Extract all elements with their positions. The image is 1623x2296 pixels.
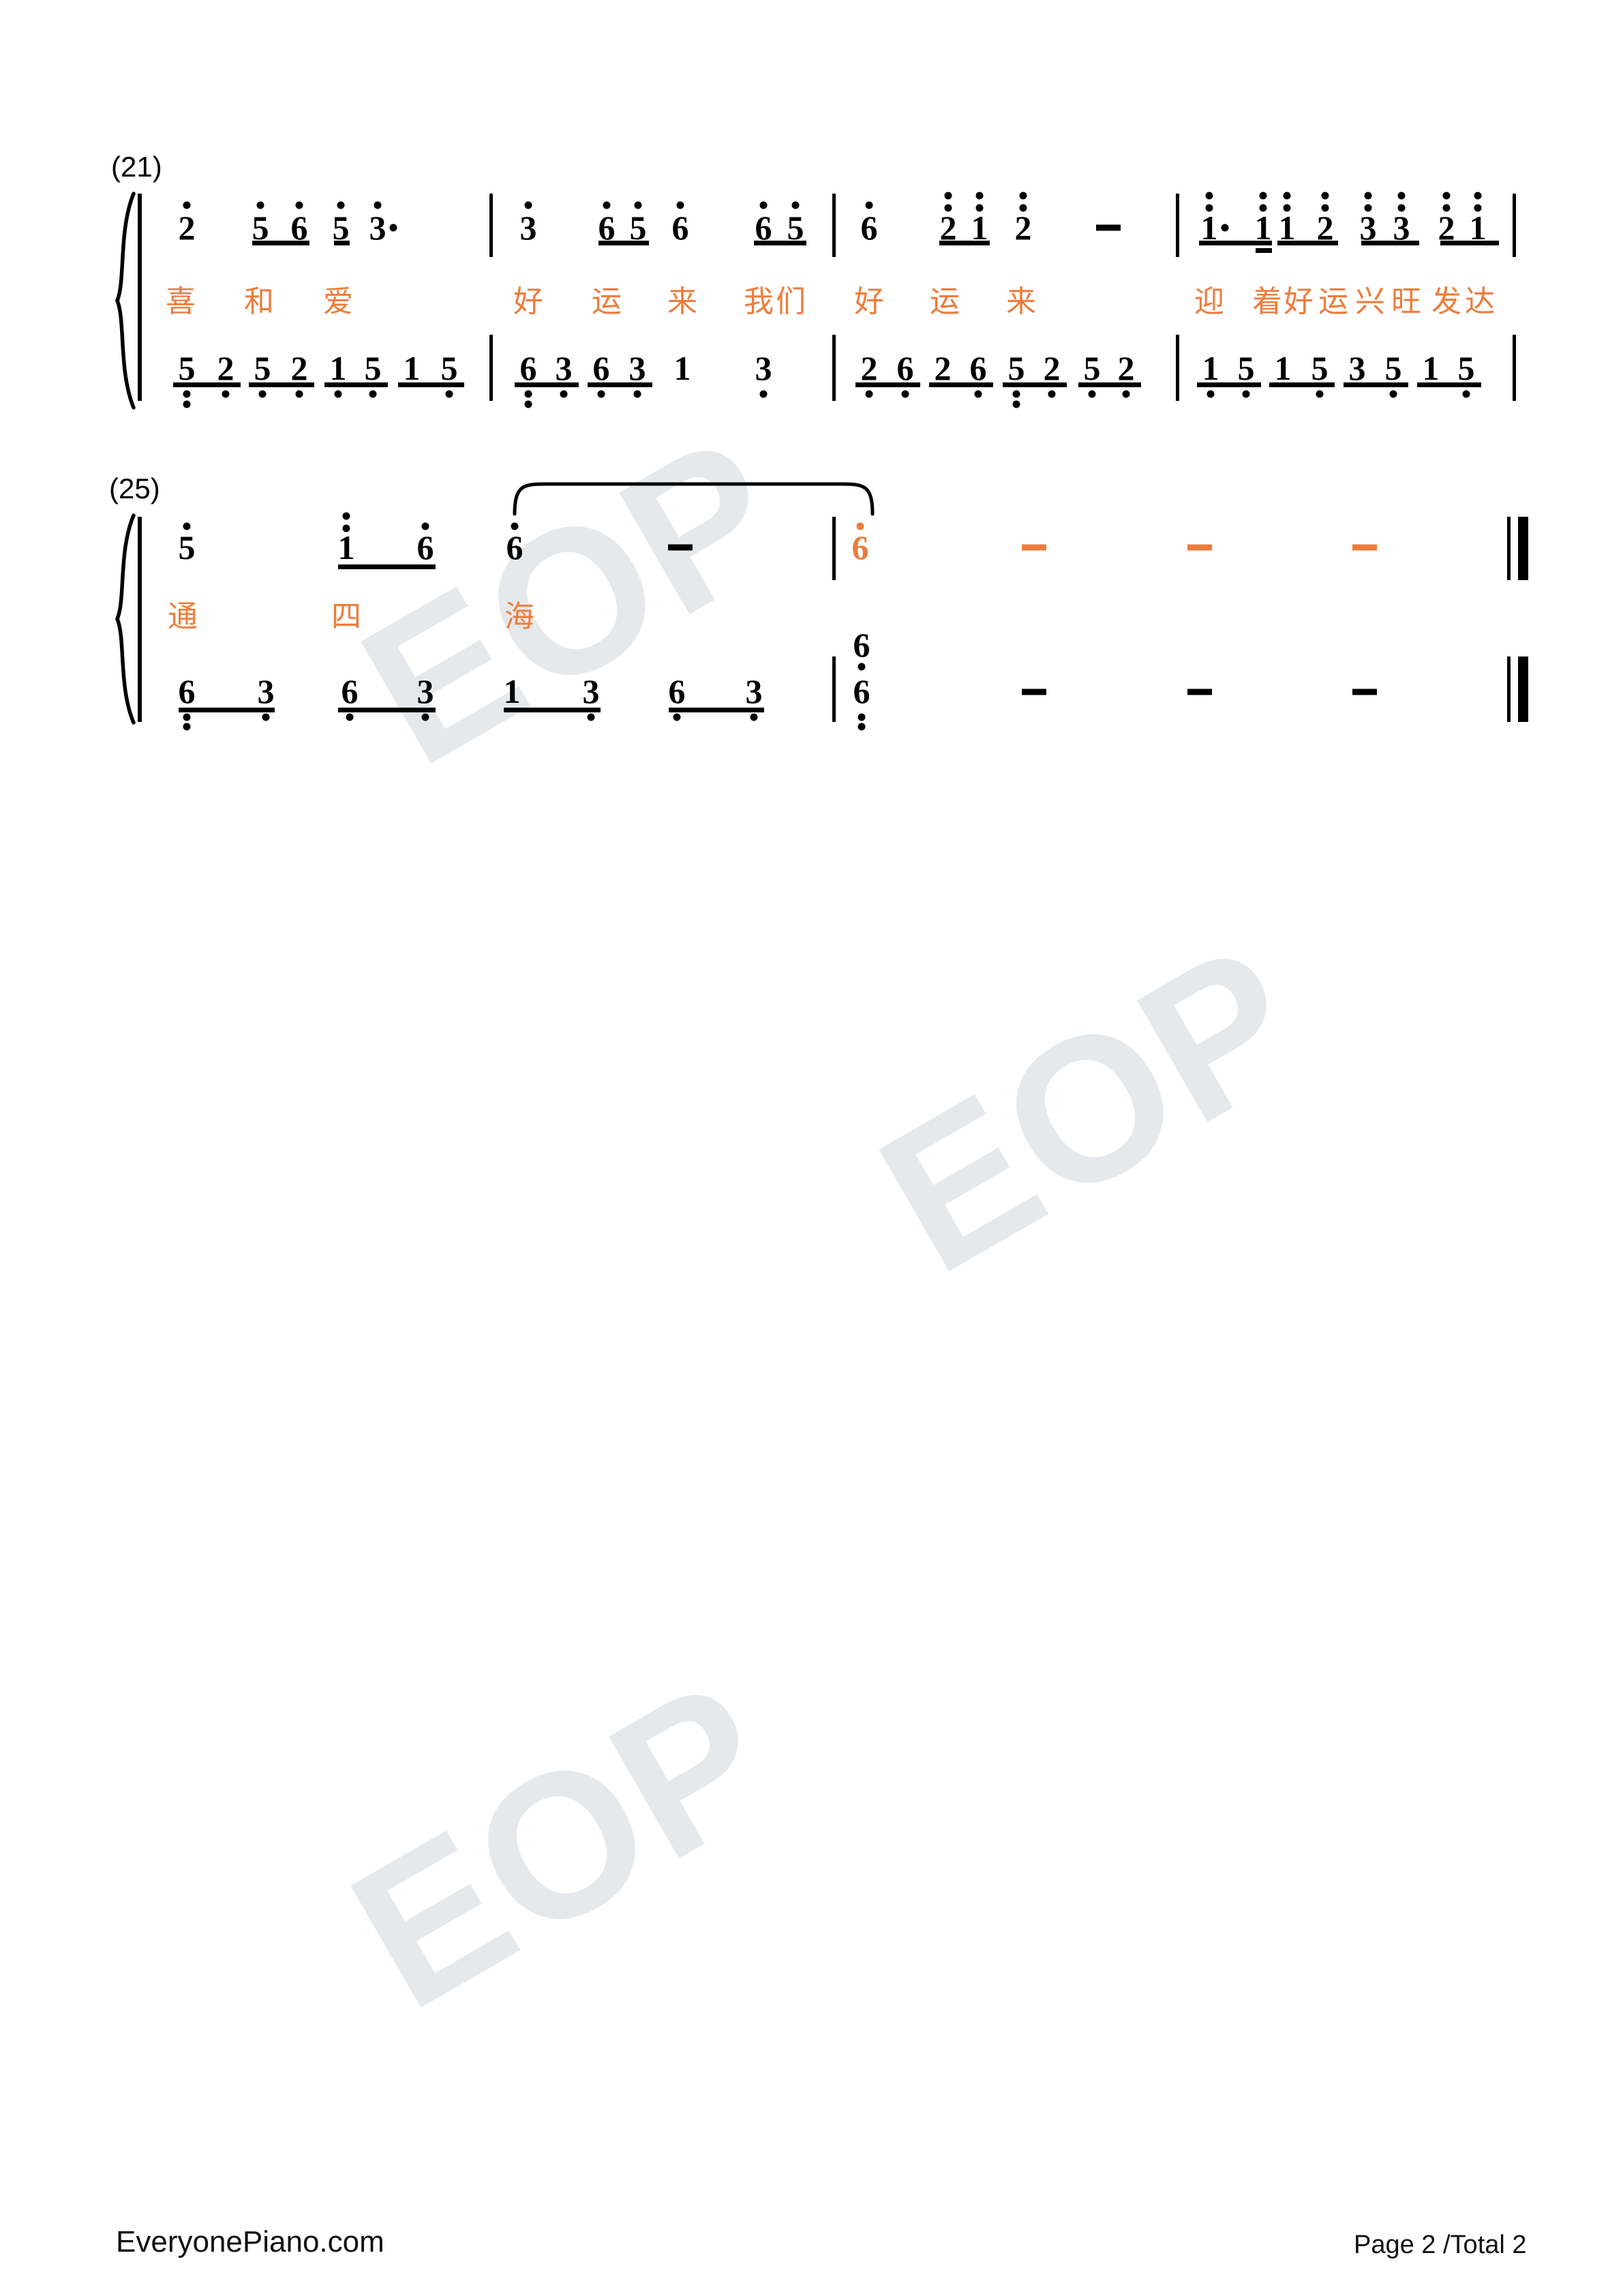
jianpu-digit: 5 bbox=[787, 211, 804, 245]
lyric-syllable: 运 bbox=[1318, 287, 1348, 317]
octave-dot bbox=[183, 723, 191, 731]
jianpu-digit: 2 bbox=[1015, 211, 1032, 245]
lyric-syllable: 海 bbox=[504, 602, 534, 632]
beam-line bbox=[504, 708, 601, 712]
footer-page-info: Page 2 /Total 2 bbox=[1354, 2231, 1527, 2260]
jianpu-digit: 3 bbox=[746, 674, 763, 708]
beam-line bbox=[1199, 241, 1272, 245]
jianpu-digit: 6 bbox=[897, 351, 914, 385]
sheet-music-page: EOPEOPEOP (21)25653365665621211123321喜和爱… bbox=[0, 0, 1623, 2296]
measure-number-label: (25) bbox=[109, 474, 160, 503]
barline bbox=[489, 335, 493, 401]
jianpu-digit: 1 bbox=[504, 674, 521, 708]
octave-dot bbox=[588, 714, 595, 721]
octave-dot bbox=[560, 391, 568, 398]
lyric-syllable: 们 bbox=[776, 287, 806, 317]
eop-watermark: EOP bbox=[325, 389, 821, 811]
octave-dot bbox=[945, 205, 952, 212]
jianpu-digit: 5 bbox=[1311, 351, 1329, 385]
beam-line bbox=[1361, 241, 1419, 245]
beam-line bbox=[1078, 382, 1141, 387]
octave-dot bbox=[1365, 192, 1372, 200]
octave-dot bbox=[183, 523, 191, 530]
jianpu-digit: 5 bbox=[1238, 351, 1255, 385]
eop-watermark: EOP bbox=[843, 896, 1339, 1318]
jianpu-digit: 5 bbox=[252, 211, 269, 245]
lyric-syllable: 来 bbox=[1006, 287, 1036, 317]
octave-dot bbox=[976, 205, 984, 212]
measure-number-label: (21) bbox=[111, 153, 162, 181]
octave-dot bbox=[257, 202, 264, 209]
beam-line bbox=[1277, 241, 1338, 245]
barline bbox=[1507, 517, 1511, 580]
barline bbox=[1176, 335, 1179, 401]
beam-line bbox=[1197, 382, 1261, 387]
jianpu-digit: 3 bbox=[1360, 211, 1377, 245]
beam-line bbox=[334, 241, 350, 245]
lyric-syllable: 兴 bbox=[1355, 287, 1385, 317]
barline bbox=[1507, 656, 1511, 722]
beam-line bbox=[324, 382, 388, 387]
jianpu-digit: 1 bbox=[971, 211, 988, 245]
lyric-syllable: 迎 bbox=[1194, 287, 1224, 317]
lyric-syllable: 爱 bbox=[323, 287, 353, 317]
jianpu-digit: 1 bbox=[1275, 351, 1292, 385]
octave-dot bbox=[750, 714, 758, 721]
octave-dot bbox=[390, 224, 397, 232]
lyric-syllable: 喜 bbox=[166, 287, 196, 317]
octave-dot bbox=[760, 391, 768, 398]
eop-watermark: EOP bbox=[315, 1633, 810, 2055]
octave-dot bbox=[1207, 391, 1215, 398]
jianpu-digit: 5 bbox=[179, 530, 196, 564]
jianpu-digit: 2 bbox=[940, 211, 957, 245]
jianpu-digit: 3 bbox=[417, 674, 434, 708]
grand-staff-brace bbox=[109, 513, 142, 725]
octave-dot bbox=[1322, 205, 1329, 212]
octave-dot bbox=[369, 391, 377, 398]
octave-dot bbox=[1322, 192, 1329, 200]
jianpu-digit: 6 bbox=[342, 674, 359, 708]
octave-dot bbox=[343, 525, 350, 532]
jianpu-digit: 6 bbox=[598, 211, 616, 245]
octave-dot bbox=[902, 391, 909, 398]
barline-thick bbox=[1518, 517, 1528, 580]
beam-line bbox=[1417, 382, 1481, 387]
beam-line bbox=[515, 382, 579, 387]
jianpu-digit: 1 bbox=[338, 530, 355, 564]
jianpu-digit: 5 bbox=[1084, 351, 1101, 385]
jianpu-digit: 6 bbox=[672, 211, 689, 245]
lyric-syllable: 四 bbox=[331, 602, 361, 632]
jianpu-digit: 3 bbox=[369, 211, 386, 245]
barline bbox=[832, 656, 836, 722]
octave-dot bbox=[634, 391, 641, 398]
octave-dot bbox=[976, 192, 984, 200]
jianpu-digit: 5 bbox=[630, 211, 647, 245]
beam-line bbox=[249, 382, 314, 387]
barline bbox=[1176, 194, 1179, 257]
octave-dot bbox=[422, 523, 429, 530]
beam-line bbox=[939, 241, 990, 245]
octave-dot bbox=[511, 523, 519, 530]
octave-dot bbox=[858, 723, 866, 731]
jianpu-digit: 1 bbox=[404, 351, 421, 385]
jianpu-digit: 5 bbox=[254, 351, 271, 385]
octave-dot bbox=[1013, 401, 1020, 408]
octave-dot bbox=[525, 202, 532, 209]
jianpu-digit: 2 bbox=[1438, 211, 1455, 245]
jianpu-digit: 5 bbox=[1385, 351, 1402, 385]
jianpu-digit: 6 bbox=[593, 351, 610, 385]
octave-dot bbox=[1013, 391, 1020, 398]
lyric-syllable: 好 bbox=[1284, 287, 1314, 317]
octave-dot bbox=[1284, 192, 1291, 200]
octave-dot bbox=[183, 391, 191, 398]
lyric-syllable: 发 bbox=[1431, 287, 1461, 317]
jianpu-digit: 3 bbox=[520, 211, 537, 245]
octave-dot bbox=[1365, 205, 1372, 212]
octave-dot bbox=[1206, 192, 1213, 200]
duration-dash bbox=[668, 545, 693, 551]
jianpu-digit: 6 bbox=[417, 530, 434, 564]
octave-dot bbox=[296, 202, 303, 209]
octave-dot bbox=[677, 202, 684, 209]
barline-thick bbox=[1518, 656, 1528, 722]
jianpu-digit: 2 bbox=[1044, 351, 1061, 385]
duration-dash bbox=[1096, 225, 1121, 231]
duration-dash bbox=[1022, 545, 1046, 551]
beam-line bbox=[1344, 382, 1408, 387]
jianpu-digit: 2 bbox=[179, 211, 196, 245]
octave-dot bbox=[1474, 205, 1482, 212]
jianpu-digit: 1 bbox=[1201, 211, 1218, 245]
jianpu-digit: 1 bbox=[1255, 211, 1272, 245]
octave-dot bbox=[858, 663, 866, 671]
duration-dash bbox=[1187, 689, 1212, 695]
beam-line bbox=[929, 382, 993, 387]
beam-line bbox=[1440, 241, 1499, 245]
octave-dot bbox=[262, 714, 270, 721]
octave-dot bbox=[1243, 391, 1250, 398]
lyric-syllable: 达 bbox=[1465, 287, 1495, 317]
jianpu-digit: 6 bbox=[520, 351, 537, 385]
jianpu-digit: 2 bbox=[291, 351, 308, 385]
octave-dot bbox=[673, 714, 681, 721]
barline bbox=[1513, 194, 1516, 257]
octave-dot bbox=[296, 391, 303, 398]
beam-line bbox=[398, 382, 464, 387]
octave-dot bbox=[446, 391, 453, 398]
barline bbox=[832, 517, 836, 580]
lyric-syllable: 我 bbox=[744, 287, 774, 317]
jianpu-digit: 2 bbox=[1118, 351, 1135, 385]
jianpu-digit: 6 bbox=[853, 674, 870, 708]
beam-line bbox=[1269, 382, 1335, 387]
octave-dot bbox=[866, 202, 873, 209]
beam-line bbox=[173, 382, 241, 387]
octave-dot bbox=[945, 192, 952, 200]
jianpu-digit: 3 bbox=[583, 674, 600, 708]
lyric-syllable: 来 bbox=[667, 287, 697, 317]
octave-dot bbox=[183, 714, 191, 721]
lyric-syllable: 着 bbox=[1252, 287, 1282, 317]
octave-dot bbox=[1474, 192, 1482, 200]
tie-slur bbox=[504, 477, 883, 521]
duration-dash bbox=[1022, 689, 1046, 695]
octave-dot bbox=[1398, 192, 1406, 200]
barline bbox=[138, 517, 142, 722]
octave-dot bbox=[335, 391, 342, 398]
lyric-syllable: 旺 bbox=[1391, 287, 1421, 317]
duration-dash bbox=[1187, 545, 1212, 551]
jianpu-digit: 5 bbox=[1458, 351, 1475, 385]
jianpu-digit: 5 bbox=[333, 211, 350, 245]
lyric-syllable: 运 bbox=[930, 287, 960, 317]
beam-line bbox=[588, 382, 652, 387]
jianpu-digit: 6 bbox=[755, 211, 772, 245]
jianpu-digit: 1 bbox=[1279, 211, 1296, 245]
beam-line bbox=[669, 708, 764, 712]
barline bbox=[832, 194, 836, 257]
octave-dot bbox=[374, 202, 382, 209]
octave-dot bbox=[1123, 391, 1130, 398]
octave-dot bbox=[1222, 224, 1229, 232]
octave-dot bbox=[1089, 391, 1096, 398]
lyric-syllable: 好 bbox=[513, 287, 543, 317]
jianpu-digit: 5 bbox=[1008, 351, 1025, 385]
barline bbox=[1513, 335, 1516, 401]
lyric-syllable: 通 bbox=[168, 602, 198, 632]
octave-dot bbox=[1260, 192, 1267, 200]
octave-dot bbox=[603, 202, 611, 209]
octave-dot bbox=[1316, 391, 1324, 398]
octave-dot bbox=[866, 391, 873, 398]
jianpu-digit: 2 bbox=[1317, 211, 1334, 245]
octave-dot bbox=[857, 523, 864, 530]
octave-dot bbox=[222, 391, 230, 398]
jianpu-digit: 5 bbox=[441, 351, 458, 385]
beam-line bbox=[754, 241, 806, 245]
octave-dot bbox=[422, 714, 429, 721]
jianpu-digit: 6 bbox=[669, 674, 686, 708]
lyric-syllable: 好 bbox=[854, 287, 884, 317]
octave-dot bbox=[346, 714, 354, 721]
octave-dot bbox=[1048, 391, 1056, 398]
duration-dash bbox=[1352, 689, 1377, 695]
jianpu-digit: 3 bbox=[258, 674, 275, 708]
octave-dot bbox=[525, 401, 532, 408]
jianpu-digit: 3 bbox=[755, 351, 772, 385]
beam-line bbox=[179, 708, 275, 712]
octave-dot bbox=[1020, 205, 1027, 212]
octave-dot bbox=[1443, 192, 1451, 200]
jianpu-digit: 3 bbox=[629, 351, 646, 385]
octave-dot bbox=[1398, 205, 1406, 212]
beam-line bbox=[598, 241, 649, 245]
jianpu-digit: 1 bbox=[1423, 351, 1440, 385]
jianpu-digit: 3 bbox=[1393, 211, 1410, 245]
octave-dot bbox=[1284, 205, 1291, 212]
beam-line-16th bbox=[1256, 248, 1272, 253]
octave-dot bbox=[343, 513, 350, 520]
jianpu-digit: 6 bbox=[852, 530, 869, 564]
jianpu-digit: 6 bbox=[506, 530, 524, 564]
jianpu-digit: 5 bbox=[179, 351, 196, 385]
beam-line bbox=[1003, 382, 1067, 387]
octave-dot bbox=[598, 391, 605, 398]
octave-dot bbox=[1206, 205, 1213, 212]
jianpu-digit: 3 bbox=[1349, 351, 1366, 385]
octave-dot bbox=[858, 714, 866, 721]
octave-dot bbox=[1443, 205, 1451, 212]
jianpu-digit-chord-upper: 6 bbox=[853, 628, 870, 662]
barline bbox=[138, 194, 142, 401]
octave-dot bbox=[525, 391, 532, 398]
grand-staff-brace bbox=[109, 191, 142, 410]
octave-dot bbox=[1390, 391, 1397, 398]
octave-dot bbox=[1020, 192, 1027, 200]
octave-dot bbox=[183, 202, 191, 209]
jianpu-digit: 6 bbox=[291, 211, 308, 245]
jianpu-digit: 2 bbox=[861, 351, 878, 385]
beam-line bbox=[855, 382, 920, 387]
jianpu-digit: 6 bbox=[861, 211, 878, 245]
beam-line bbox=[338, 708, 436, 712]
duration-dash bbox=[1352, 545, 1377, 551]
jianpu-digit: 3 bbox=[556, 351, 573, 385]
octave-dot bbox=[975, 391, 982, 398]
jianpu-digit: 1 bbox=[1202, 351, 1219, 385]
octave-dot bbox=[635, 202, 642, 209]
octave-dot bbox=[1463, 391, 1470, 398]
barline bbox=[489, 194, 493, 257]
footer-site-text: EveryonePiano.com bbox=[116, 2225, 384, 2259]
jianpu-digit: 1 bbox=[674, 351, 691, 385]
lyric-syllable: 运 bbox=[592, 287, 622, 317]
octave-dot bbox=[183, 401, 191, 408]
jianpu-digit: 1 bbox=[1470, 211, 1487, 245]
jianpu-digit: 1 bbox=[330, 351, 347, 385]
octave-dot bbox=[337, 202, 345, 209]
lyric-syllable: 和 bbox=[244, 287, 274, 317]
jianpu-digit: 6 bbox=[179, 674, 196, 708]
jianpu-digit: 6 bbox=[970, 351, 987, 385]
octave-dot bbox=[1260, 205, 1267, 212]
octave-dot bbox=[792, 202, 800, 209]
barline bbox=[832, 335, 836, 401]
beam-line bbox=[252, 241, 309, 245]
octave-dot bbox=[259, 391, 267, 398]
beam-line bbox=[338, 564, 436, 569]
jianpu-digit: 5 bbox=[365, 351, 382, 385]
jianpu-digit: 2 bbox=[935, 351, 952, 385]
octave-dot bbox=[760, 202, 768, 209]
jianpu-digit: 2 bbox=[217, 351, 234, 385]
